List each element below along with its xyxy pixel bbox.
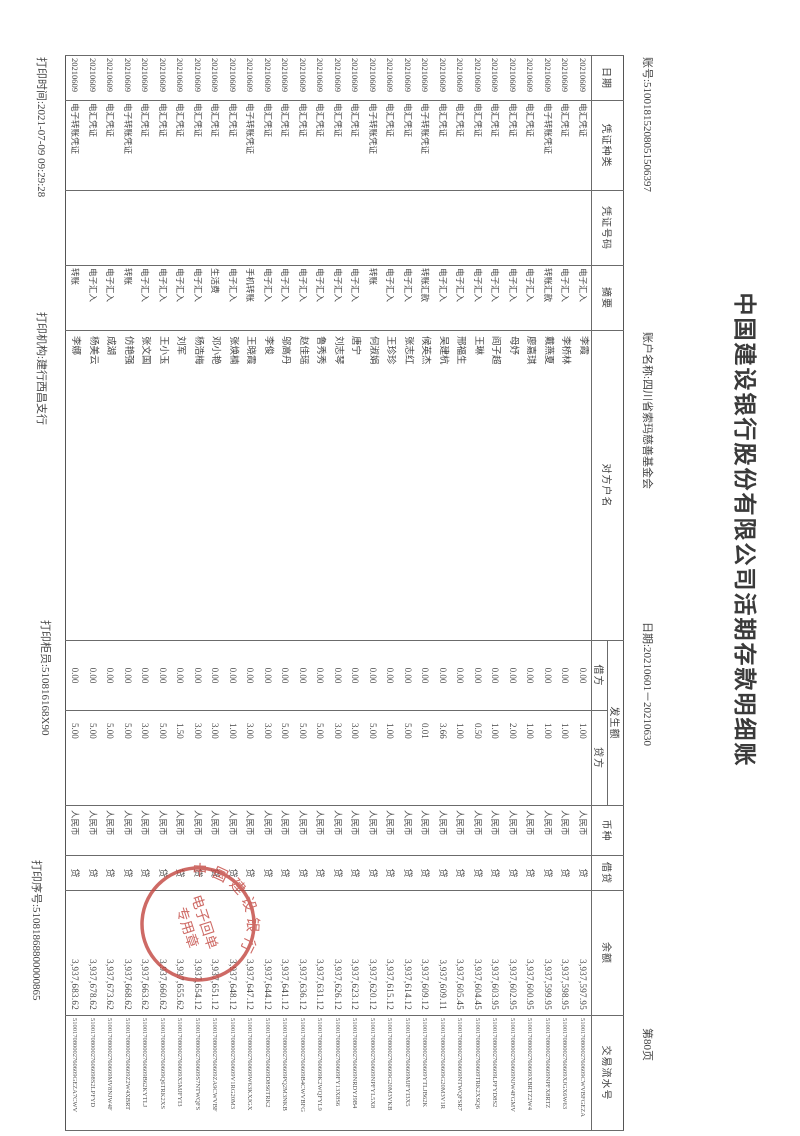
cell-summary: 电子汇入 [521, 266, 539, 331]
cell-counterparty: 杨美云 [84, 331, 102, 641]
cell-voucher-no [189, 191, 207, 266]
cell-date: 20210609 [311, 56, 329, 101]
cell-currency: 人民币 [84, 806, 102, 856]
cell-credit: 2.00 [504, 711, 522, 806]
cell-serial: 510017080002760609NPFX8RTZ [539, 1016, 557, 1131]
cell-summary: 生活费 [206, 266, 224, 331]
cell-dr-cr: 贷 [364, 856, 382, 891]
table-row: 20210609电汇凭证电子汇入母妤0.002.00人民币贷3,937,602.… [504, 56, 522, 1131]
cell-credit: 5.00 [364, 711, 382, 806]
col-header-amount-group: 发生额 [608, 641, 624, 806]
cell-dr-cr: 贷 [556, 856, 574, 891]
cell-voucher-type: 电汇凭证 [154, 101, 172, 191]
cell-date: 20210609 [381, 56, 399, 101]
cell-date: 20210609 [224, 56, 242, 101]
cell-date: 20210609 [66, 56, 84, 101]
cell-voucher-type: 电子转账凭证 [241, 101, 259, 191]
cell-currency: 人民币 [434, 806, 452, 856]
cell-serial: 510017080002760609NTWQFSR7 [451, 1016, 469, 1131]
cell-summary: 电子汇入 [294, 266, 312, 331]
cell-serial: 510017080002760609NRDYJ9B4 [346, 1016, 364, 1131]
cell-voucher-type: 电汇凭证 [574, 101, 592, 191]
cell-serial: 510017080002760609MV8NJW4F [101, 1016, 119, 1131]
cell-debit: 0.00 [206, 641, 224, 711]
cell-dr-cr: 贷 [241, 856, 259, 891]
cell-serial: 510017080002760609Z2W4XBRT [119, 1016, 137, 1131]
cell-credit: 5.00 [154, 711, 172, 806]
cell-balance: 3,937,660.62 [154, 891, 172, 1016]
cell-debit: 0.00 [189, 641, 207, 711]
cell-counterparty: 李娜 [66, 331, 84, 641]
cell-voucher-no [206, 191, 224, 266]
cell-debit: 0.00 [66, 641, 84, 711]
cell-serial: 510017080002760609XJGX6W63 [556, 1016, 574, 1131]
cell-credit: 5.00 [84, 711, 102, 806]
table-row: 20210609电汇凭证电子汇入王珍珍0.001.00人民币贷3,937,615… [381, 56, 399, 1131]
cell-credit: 5.00 [294, 711, 312, 806]
cell-date: 20210609 [276, 56, 294, 101]
cell-credit: 1.00 [539, 711, 557, 806]
cell-voucher-type: 电子转账凭证 [416, 101, 434, 191]
cell-serial: 510017080002760609XBRTZ2W4 [521, 1016, 539, 1131]
cell-date: 20210609 [259, 56, 277, 101]
cell-counterparty: 候英杰 [416, 331, 434, 641]
cell-voucher-no [539, 191, 557, 266]
cell-date: 20210609 [556, 56, 574, 101]
table-body: 20210609电汇凭证电子汇入李霞0.001.00人民币贷3,937,597.… [66, 56, 592, 1131]
cell-voucher-type: 电汇凭证 [399, 101, 417, 191]
cell-serial: 510017080002760609TRK2XSQ6 [469, 1016, 487, 1131]
cell-counterparty: 王珍珍 [381, 331, 399, 641]
table-header: 日期 凭证种类 凭证号码 摘要 对方户名 发生额 币种 借贷 余额 交易流水号 … [592, 56, 624, 1131]
cell-debit: 0.00 [469, 641, 487, 711]
cell-voucher-type: 电汇凭证 [434, 101, 452, 191]
cell-debit: 0.00 [381, 641, 399, 711]
table-row: 20210609电汇凭证生活费邓小艳0.003.00人民币贷3,937,651.… [206, 56, 224, 1131]
cell-date: 20210609 [154, 56, 172, 101]
cell-credit: 3.00 [189, 711, 207, 806]
cell-voucher-type: 电子转账凭证 [539, 101, 557, 191]
cell-debit: 0.00 [521, 641, 539, 711]
cell-credit: 1.00 [224, 711, 242, 806]
cell-voucher-no [416, 191, 434, 266]
cell-debit: 0.00 [154, 641, 172, 711]
cell-voucher-type: 电汇凭证 [136, 101, 154, 191]
cell-balance: 3,937,651.12 [206, 891, 224, 1016]
cell-dr-cr: 贷 [136, 856, 154, 891]
table-row: 20210609电子转账凭证转账汇款戴燕夏0.001.00人民币贷3,937,5… [539, 56, 557, 1131]
cell-counterparty: 何淑娟 [364, 331, 382, 641]
table-row: 20210609电汇凭证电子汇入张焕楠0.001.00人民币贷3,937,648… [224, 56, 242, 1131]
cell-currency: 人民币 [206, 806, 224, 856]
cell-currency: 人民币 [556, 806, 574, 856]
cell-date: 20210609 [101, 56, 119, 101]
cell-voucher-no [486, 191, 504, 266]
cell-currency: 人民币 [486, 806, 504, 856]
cell-balance: 3,937,636.12 [294, 891, 312, 1016]
cell-debit: 0.00 [399, 641, 417, 711]
cell-balance: 3,937,614.12 [399, 891, 417, 1016]
cell-serial: 510017080002760609GEZA7CWV [66, 1016, 84, 1131]
table-row: 20210609电子转账凭证转账仿艳强0.005.00人民币贷3,937,668… [119, 56, 137, 1131]
cell-currency: 人民币 [381, 806, 399, 856]
cell-currency: 人民币 [294, 806, 312, 856]
cell-serial: 510017080002760609X5MJFYI3 [171, 1016, 189, 1131]
cell-voucher-type: 电汇凭证 [451, 101, 469, 191]
cell-debit: 0.00 [346, 641, 364, 711]
cell-serial: 510017080002760609FY13X8S6 [329, 1016, 347, 1131]
cell-dr-cr: 贷 [521, 856, 539, 891]
cell-balance: 3,937,654.12 [189, 891, 207, 1016]
cell-credit: 1.00 [556, 711, 574, 806]
cell-currency: 人民币 [521, 806, 539, 856]
cell-dr-cr: 贷 [329, 856, 347, 891]
cell-credit: 5.00 [311, 711, 329, 806]
cell-balance: 3,937,668.62 [119, 891, 137, 1016]
cell-debit: 0.00 [224, 641, 242, 711]
cell-serial: 510017080002760609D8S6TRK2 [259, 1016, 277, 1131]
cell-dr-cr: 贷 [119, 856, 137, 891]
cell-counterparty: 张焕楠 [224, 331, 242, 641]
account-number: 账号:51001815208051506397 [640, 57, 656, 192]
table-row: 20210609电汇凭证电子汇入阎子超0.001.00人民币贷3,937,603… [486, 56, 504, 1131]
table-row: 20210609电汇凭证电子汇入李桥林0.001.00人民币贷3,937,598… [556, 56, 574, 1131]
cell-summary: 转账汇款 [416, 266, 434, 331]
cell-currency: 人民币 [364, 806, 382, 856]
cell-balance: 3,937,626.12 [329, 891, 347, 1016]
table-row: 20210609电汇凭证电子汇入廖嘉琪0.001.00人民币贷3,937,600… [521, 56, 539, 1131]
cell-date: 20210609 [486, 56, 504, 101]
cell-counterparty: 邓小艳 [206, 331, 224, 641]
table-row: 20210609电汇凭证电子汇入李俊0.003.00人民币贷3,937,644.… [259, 56, 277, 1131]
print-time: 打印时间:2021-07-09 09:29:28 [34, 57, 50, 197]
cell-summary: 电子汇入 [329, 266, 347, 331]
cell-summary: 电子汇入 [451, 266, 469, 331]
cell-counterparty: 李霞 [574, 331, 592, 641]
table-row: 20210609电汇凭证电子汇入成湖0.005.00人民币贷3,937,673.… [101, 56, 119, 1131]
cell-counterparty: 戴燕夏 [539, 331, 557, 641]
cell-voucher-no [451, 191, 469, 266]
page-title: 中国建设银行股份有限公司活期存款明细账 [730, 0, 764, 1060]
cell-date: 20210609 [434, 56, 452, 101]
cell-balance: 3,937,673.62 [101, 891, 119, 1016]
cell-serial: 510017080002760609MJFYI3X5 [399, 1016, 417, 1131]
cell-counterparty: 唐宁 [346, 331, 364, 641]
cell-voucher-type: 电汇凭证 [346, 101, 364, 191]
table-row: 20210609电子转账凭证手机转账王晓霞0.003.00人民币贷3,937,6… [241, 56, 259, 1131]
cell-summary: 电子汇入 [171, 266, 189, 331]
cell-counterparty: 李俊 [259, 331, 277, 641]
cell-dr-cr: 贷 [276, 856, 294, 891]
account-name: 账户名称:四川省索玛慈善基金会 [640, 332, 656, 489]
cell-date: 20210609 [329, 56, 347, 101]
cell-voucher-no [259, 191, 277, 266]
cell-credit: 1.00 [521, 711, 539, 806]
cell-voucher-type: 电汇凭证 [101, 101, 119, 191]
cell-debit: 0.00 [276, 641, 294, 711]
cell-debit: 0.00 [364, 641, 382, 711]
col-header-drcr: 借贷 [592, 856, 624, 891]
scanned-bank-statement: 中国建设银行股份有限公司活期存款明细账 账号:51001815208051506… [0, 0, 800, 1136]
cell-summary: 转账 [66, 266, 84, 331]
cell-dr-cr: 贷 [504, 856, 522, 891]
cell-voucher-no [434, 191, 452, 266]
cell-balance: 3,937,655.62 [171, 891, 189, 1016]
table-row: 20210609电汇凭证电子汇入刘志琴0.003.00人民币贷3,937,626… [329, 56, 347, 1131]
cell-dr-cr: 贷 [66, 856, 84, 891]
cell-counterparty: 鲁秀秀 [311, 331, 329, 641]
cell-counterparty: 王琳 [469, 331, 487, 641]
cell-summary: 电子汇入 [434, 266, 452, 331]
cell-serial: 510017080002760609G20M3VKB [381, 1016, 399, 1131]
table-row: 20210609电汇凭证电子汇入吴建杭0.003.66人民币贷3,937,609… [434, 56, 452, 1131]
cell-debit: 0.00 [259, 641, 277, 711]
cell-currency: 人民币 [311, 806, 329, 856]
cell-voucher-no [311, 191, 329, 266]
cell-summary: 电子汇入 [224, 266, 242, 331]
cell-counterparty: 邬高丹 [276, 331, 294, 641]
table-row: 20210609电汇凭证电子汇入刘军0.001.50人民币贷3,937,655.… [171, 56, 189, 1131]
cell-credit: 1.00 [381, 711, 399, 806]
cell-debit: 0.00 [451, 641, 469, 711]
cell-serial: 5100170800027606098S2LPFYD [84, 1016, 102, 1131]
cell-serial: 510017080002760609S7NTWQFS [189, 1016, 207, 1131]
cell-counterparty: 廖嘉琪 [521, 331, 539, 641]
table-row: 20210609电汇凭证电子汇入邢福生0.001.00人民币贷3,937,605… [451, 56, 469, 1131]
cell-credit: 3.00 [206, 711, 224, 806]
col-header-credit: 贷方 [592, 711, 608, 806]
cell-credit: 5.00 [399, 711, 417, 806]
cell-dr-cr: 贷 [206, 856, 224, 891]
cell-credit: 3.00 [136, 711, 154, 806]
table-row: 20210609电汇凭证电子汇入杨浩梅0.003.00人民币贷3,937,654… [189, 56, 207, 1131]
table-row: 20210609电汇凭证电子汇入邬高丹0.005.00人民币贷3,937,641… [276, 56, 294, 1131]
table-row: 20210609电子转账凭证转账汇款候英杰0.000.01人民币贷3,937,6… [416, 56, 434, 1131]
cell-balance: 3,937,631.12 [311, 891, 329, 1016]
col-header-voucher-type: 凭证种类 [592, 101, 624, 191]
cell-currency: 人民币 [504, 806, 522, 856]
cell-counterparty: 张志红 [399, 331, 417, 641]
cell-dr-cr: 贷 [224, 856, 242, 891]
cell-serial: 510017080002760609Q6TRK2XS [154, 1016, 172, 1131]
cell-serial: 510017080002760609YTLJB62K [416, 1016, 434, 1131]
cell-dr-cr: 贷 [346, 856, 364, 891]
cell-balance: 3,937,609.11 [434, 891, 452, 1016]
cell-debit: 0.00 [171, 641, 189, 711]
cell-voucher-no [556, 191, 574, 266]
cell-currency: 人民币 [259, 806, 277, 856]
cell-voucher-type: 电汇凭证 [486, 101, 504, 191]
cell-voucher-no [136, 191, 154, 266]
cell-voucher-type: 电汇凭证 [469, 101, 487, 191]
cell-balance: 3,937,599.95 [539, 891, 557, 1016]
page-number: 第80页 [640, 1028, 656, 1061]
cell-voucher-no [241, 191, 259, 266]
cell-counterparty: 刘军 [171, 331, 189, 641]
col-header-serial: 交易流水号 [592, 1016, 624, 1131]
cell-counterparty: 邢福生 [451, 331, 469, 641]
cell-currency: 人民币 [574, 806, 592, 856]
cell-counterparty: 成湖 [101, 331, 119, 641]
cell-voucher-type: 电汇凭证 [259, 101, 277, 191]
cell-voucher-type: 电子转账凭证 [364, 101, 382, 191]
cell-balance: 3,937,683.62 [66, 891, 84, 1016]
cell-balance: 3,937,603.95 [486, 891, 504, 1016]
cell-date: 20210609 [84, 56, 102, 101]
cell-currency: 人民币 [189, 806, 207, 856]
cell-counterparty: 王晓霞 [241, 331, 259, 641]
cell-balance: 3,937,600.95 [521, 891, 539, 1016]
cell-dr-cr: 贷 [399, 856, 417, 891]
cell-voucher-type: 电汇凭证 [189, 101, 207, 191]
col-header-currency: 币种 [592, 806, 624, 856]
cell-date: 20210609 [364, 56, 382, 101]
cell-voucher-no [574, 191, 592, 266]
cell-summary: 电子汇入 [136, 266, 154, 331]
cell-debit: 0.00 [136, 641, 154, 711]
cell-date: 20210609 [451, 56, 469, 101]
cell-summary: 电子汇入 [486, 266, 504, 331]
cell-summary: 电子汇入 [311, 266, 329, 331]
cell-balance: 3,937,647.12 [241, 891, 259, 1016]
cell-dr-cr: 贷 [416, 856, 434, 891]
cell-credit: 5.00 [101, 711, 119, 806]
cell-date: 20210609 [206, 56, 224, 101]
cell-serial: 510017080002760609NJW4FGMV [504, 1016, 522, 1131]
cell-balance: 3,937,620.12 [364, 891, 382, 1016]
col-header-counterparty: 对方户名 [592, 331, 624, 641]
cell-balance: 3,937,663.62 [136, 891, 154, 1016]
cell-dr-cr: 贷 [294, 856, 312, 891]
table-row: 20210609电汇凭证电子汇入李霞0.001.00人民币贷3,937,597.… [574, 56, 592, 1131]
cell-credit: 1.00 [574, 711, 592, 806]
cell-credit: 3.00 [259, 711, 277, 806]
cell-summary: 电子汇入 [259, 266, 277, 331]
cell-debit: 0.00 [416, 641, 434, 711]
cell-voucher-no [171, 191, 189, 266]
table-row: 20210609电汇凭证电子汇入唐宁0.003.00人民币贷3,937,623.… [346, 56, 364, 1131]
cell-voucher-no [154, 191, 172, 266]
cell-counterparty: 母妤 [504, 331, 522, 641]
cell-counterparty: 李桥林 [556, 331, 574, 641]
cell-counterparty: 吴建杭 [434, 331, 452, 641]
cell-counterparty: 仿艳强 [119, 331, 137, 641]
cell-voucher-no [294, 191, 312, 266]
cell-currency: 人民币 [399, 806, 417, 856]
table-row: 20210609电子转账凭证转账李娜0.005.00人民币贷3,937,683.… [66, 56, 84, 1131]
cell-currency: 人民币 [154, 806, 172, 856]
cell-date: 20210609 [136, 56, 154, 101]
cell-dr-cr: 贷 [189, 856, 207, 891]
cell-summary: 转账汇款 [539, 266, 557, 331]
cell-date: 20210609 [294, 56, 312, 101]
col-header-date: 日期 [592, 56, 624, 101]
cell-debit: 0.00 [294, 641, 312, 711]
cell-counterparty: 王小玉 [154, 331, 172, 641]
cell-summary: 转账 [119, 266, 137, 331]
cell-credit: 0.01 [416, 711, 434, 806]
cell-credit: 5.00 [66, 711, 84, 806]
cell-currency: 人民币 [241, 806, 259, 856]
cell-date: 20210609 [416, 56, 434, 101]
statement-document-rotated: 中国建设银行股份有限公司活期存款明细账 账号:51001815208051506… [0, 0, 800, 1136]
cell-voucher-type: 电汇凭证 [504, 101, 522, 191]
print-branch: 打印机构:建行西昌支行 [34, 312, 50, 425]
cell-dr-cr: 贷 [311, 856, 329, 891]
cell-summary: 电子汇入 [154, 266, 172, 331]
cell-serial: 510017080002760609NPFYL5X8 [364, 1016, 382, 1131]
cell-summary: 手机转账 [241, 266, 259, 331]
cell-voucher-type: 电汇凭证 [224, 101, 242, 191]
cell-voucher-type: 电子转账凭证 [66, 101, 84, 191]
table-row: 20210609电汇凭证电子汇入张志红0.005.00人民币贷3,937,614… [399, 56, 417, 1131]
cell-dr-cr: 贷 [154, 856, 172, 891]
cell-debit: 0.00 [84, 641, 102, 711]
cell-currency: 人民币 [119, 806, 137, 856]
cell-serial: 510017080002760609PQ2M3NKB [276, 1016, 294, 1131]
cell-dr-cr: 贷 [171, 856, 189, 891]
print-serial: 打印序号:51081868800000865 [29, 860, 45, 1001]
cell-credit: 3.00 [346, 711, 364, 806]
cell-debit: 0.00 [241, 641, 259, 711]
table-row: 20210609电汇凭证电子汇入赵佳瑶0.005.00人民币贷3,937,636… [294, 56, 312, 1131]
cell-date: 20210609 [346, 56, 364, 101]
table-row: 20210609电汇凭证电子汇入鲁秀秀0.005.00人民币贷3,937,631… [311, 56, 329, 1131]
cell-date: 20210609 [399, 56, 417, 101]
cell-summary: 电子汇入 [469, 266, 487, 331]
cell-date: 20210609 [574, 56, 592, 101]
cell-summary: 电子汇入 [381, 266, 399, 331]
cell-voucher-no [346, 191, 364, 266]
cell-summary: 电子汇入 [574, 266, 592, 331]
cell-debit: 0.00 [119, 641, 137, 711]
cell-voucher-type: 电汇凭证 [556, 101, 574, 191]
cell-credit: 1.00 [451, 711, 469, 806]
cell-balance: 3,937,644.12 [259, 891, 277, 1016]
cell-credit: 3.66 [434, 711, 452, 806]
cell-credit: 5.00 [119, 711, 137, 806]
cell-serial: 510017080002760609CWVBFGEZA [574, 1016, 592, 1131]
cell-summary: 电子汇入 [84, 266, 102, 331]
cell-voucher-type: 电汇凭证 [311, 101, 329, 191]
cell-voucher-type: 电子转账凭证 [119, 101, 137, 191]
cell-currency: 人民币 [276, 806, 294, 856]
cell-credit: 3.00 [329, 711, 347, 806]
cell-currency: 人民币 [539, 806, 557, 856]
cell-currency: 人民币 [469, 806, 487, 856]
cell-serial: 510017080002760609ZA9CWVBF [206, 1016, 224, 1131]
cell-voucher-no [399, 191, 417, 266]
col-header-balance: 余额 [592, 891, 624, 1016]
cell-debit: 0.00 [311, 641, 329, 711]
cell-balance: 3,937,623.12 [346, 891, 364, 1016]
cell-debit: 0.00 [486, 641, 504, 711]
cell-summary: 电子汇入 [189, 266, 207, 331]
cell-credit: 1.50 [171, 711, 189, 806]
cell-debit: 0.00 [504, 641, 522, 711]
cell-debit: 0.00 [329, 641, 347, 711]
cell-serial: 510017080002760609B4CWVBFG [294, 1016, 312, 1131]
cell-date: 20210609 [241, 56, 259, 101]
cell-balance: 3,937,648.12 [224, 891, 242, 1016]
cell-dr-cr: 贷 [486, 856, 504, 891]
cell-dr-cr: 贷 [259, 856, 277, 891]
cell-currency: 人民币 [416, 806, 434, 856]
cell-debit: 0.00 [434, 641, 452, 711]
cell-summary: 电子汇入 [504, 266, 522, 331]
cell-summary: 电子汇入 [276, 266, 294, 331]
cell-voucher-type: 电汇凭证 [381, 101, 399, 191]
